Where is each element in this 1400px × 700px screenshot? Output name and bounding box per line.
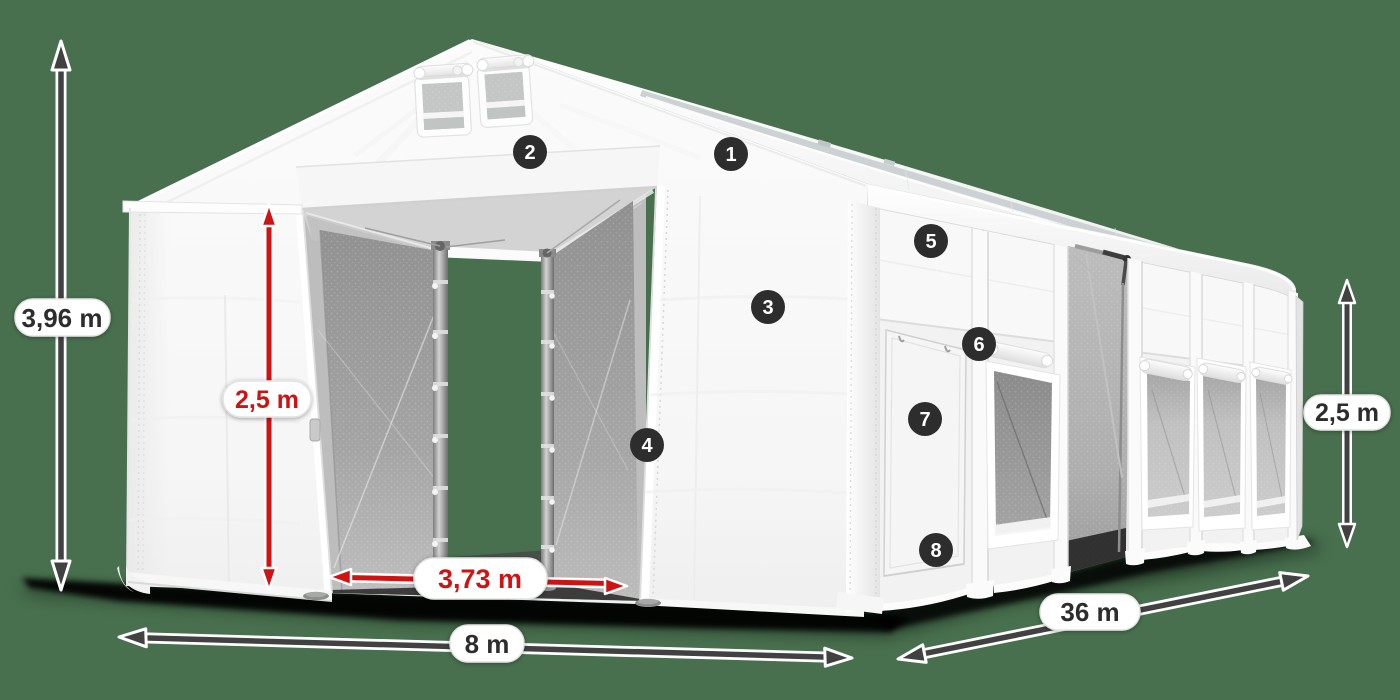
svg-text:2,5 m: 2,5 m <box>1315 399 1379 427</box>
svg-text:3,96 m: 3,96 m <box>22 303 103 333</box>
svg-text:36 m: 36 m <box>1060 597 1119 627</box>
svg-text:3: 3 <box>762 297 773 319</box>
svg-text:6: 6 <box>973 334 984 356</box>
svg-text:4: 4 <box>641 435 653 457</box>
svg-text:2: 2 <box>524 142 535 164</box>
svg-text:2,5 m: 2,5 m <box>235 386 299 414</box>
svg-text:8: 8 <box>930 540 941 562</box>
svg-text:3,73 m: 3,73 m <box>438 564 522 594</box>
svg-text:7: 7 <box>919 409 930 431</box>
svg-text:8 m: 8 m <box>465 629 510 659</box>
svg-text:1: 1 <box>725 144 736 166</box>
svg-text:5: 5 <box>925 231 936 253</box>
